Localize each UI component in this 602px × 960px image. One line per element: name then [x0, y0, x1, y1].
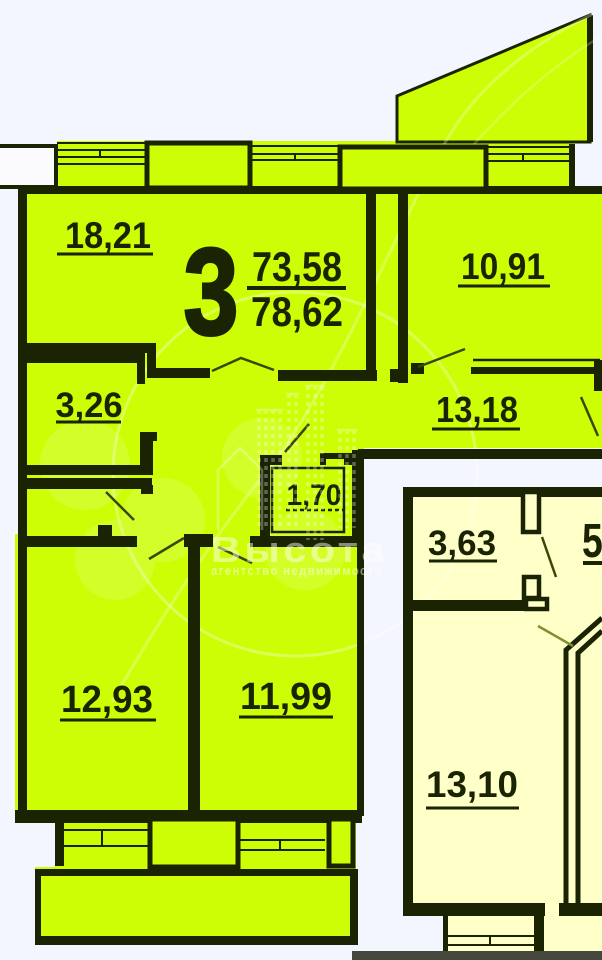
- svg-text:3,63: 3,63: [428, 524, 496, 563]
- svg-text:10,91: 10,91: [461, 246, 545, 287]
- svg-text:13,18: 13,18: [436, 389, 518, 430]
- svg-text:3,26: 3,26: [56, 386, 123, 425]
- svg-text:5,1: 5,1: [582, 515, 602, 568]
- svg-text:18,21: 18,21: [65, 215, 151, 256]
- svg-text:11,99: 11,99: [240, 676, 332, 718]
- svg-text:13,10: 13,10: [426, 764, 518, 805]
- svg-text:агентство недвижимости: агентство недвижимости: [211, 564, 383, 578]
- svg-text:78,62: 78,62: [251, 288, 343, 335]
- svg-text:73,58: 73,58: [252, 243, 342, 290]
- svg-text:12,93: 12,93: [61, 679, 153, 721]
- svg-text:3: 3: [184, 224, 239, 361]
